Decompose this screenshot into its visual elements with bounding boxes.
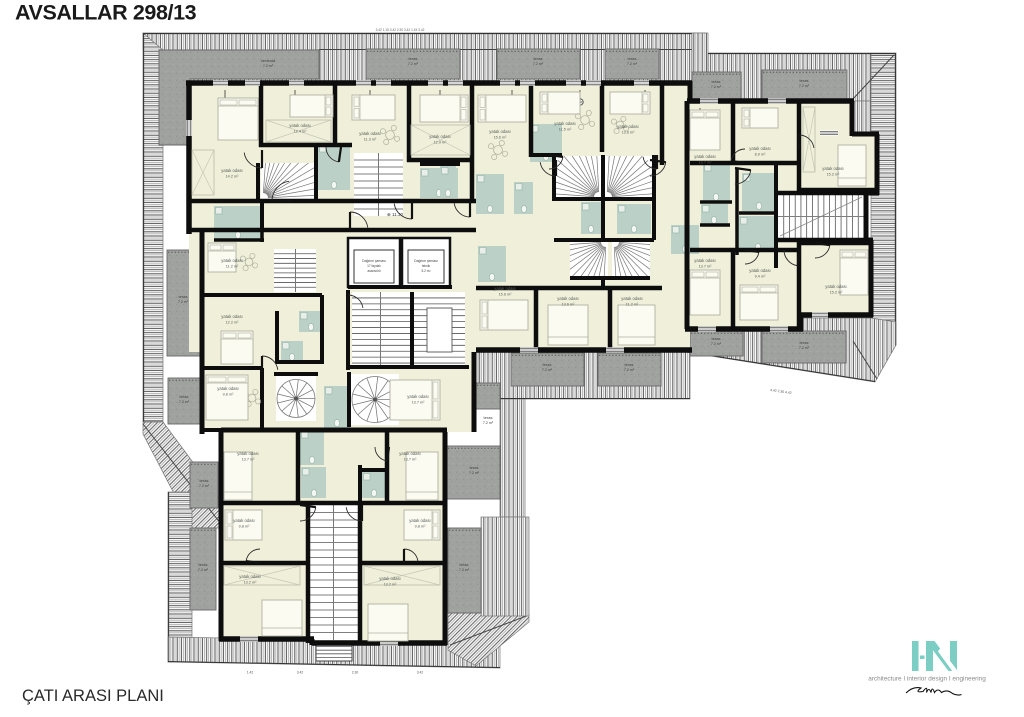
svg-text:yatak odası: yatak odası <box>221 258 242 263</box>
svg-text:7.2 m²: 7.2 m² <box>542 368 553 372</box>
svg-text:teras: teras <box>200 478 209 483</box>
svg-text:yatak odası: yatak odası <box>557 296 578 301</box>
svg-text:teras: teras <box>470 465 479 470</box>
svg-text:15.6 m²: 15.6 m² <box>494 136 508 140</box>
svg-text:yatak odası: yatak odası <box>217 386 238 391</box>
svg-text:architecture I interior desi: architecture I interior design I enginee… <box>868 676 986 683</box>
svg-text:yatak odası: yatak odası <box>379 576 400 581</box>
svg-text:13.2 m²: 13.2 m² <box>244 581 258 585</box>
svg-text:12.2 m²: 12.2 m² <box>226 321 240 325</box>
svg-text:teknik: teknik <box>422 264 431 268</box>
svg-text:yatak odası: yatak odası <box>749 268 770 273</box>
svg-text:yatak odası: yatak odası <box>822 166 843 171</box>
svg-text:7.2 m²: 7.2 m² <box>179 400 190 404</box>
svg-text:Dağıtım şeması: Dağıtım şeması <box>362 259 386 263</box>
svg-text:teras: teras <box>543 362 552 367</box>
svg-text:7.2 m²: 7.2 m² <box>483 421 494 425</box>
svg-text:yatak odası: yatak odası <box>825 284 846 289</box>
svg-text:11.2 m²: 11.2 m² <box>626 303 639 307</box>
svg-text:teras: teras <box>628 56 637 61</box>
svg-text:15.2 m²: 15.2 m² <box>827 173 841 177</box>
svg-text:8.9 m²: 8.9 m² <box>755 153 766 157</box>
svg-text:ÇATI ARASI PLANI: ÇATI ARASI PLANI <box>22 687 164 705</box>
svg-text:13.7 m²: 13.7 m² <box>412 401 426 405</box>
svg-text:yatak odası: yatak odası <box>289 123 310 128</box>
svg-text:1.42: 1.42 <box>247 671 254 675</box>
svg-text:11.5 m²: 11.5 m² <box>559 128 572 132</box>
svg-text:7.2 m²: 7.2 m² <box>459 568 470 572</box>
svg-text:17 faydalı: 17 faydalı <box>367 264 381 268</box>
svg-text:7.2 m²: 7.2 m² <box>178 300 189 304</box>
svg-text:yatak odası: yatak odası <box>694 258 715 263</box>
svg-text:yatak odası: yatak odası <box>237 451 258 456</box>
svg-text:yatak odası: yatak odası <box>409 518 430 523</box>
svg-text:yatak odası: yatak odası <box>489 129 510 134</box>
svg-text:yatak odası: yatak odası <box>621 296 642 301</box>
svg-text:veranda: veranda <box>261 58 276 63</box>
svg-text:7.2 m²: 7.2 m² <box>799 346 810 350</box>
svg-text:3.42: 3.42 <box>417 671 424 675</box>
svg-text:13.7 m²: 13.7 m² <box>404 458 418 462</box>
svg-text:7.2 m²: 7.2 m² <box>711 342 722 346</box>
svg-text:5.2 m²: 5.2 m² <box>421 269 430 273</box>
svg-text:yatak odası: yatak odası <box>429 134 450 139</box>
svg-text:teras: teras <box>179 294 188 299</box>
svg-text:yatak odası: yatak odası <box>221 314 242 319</box>
svg-text:yatak odası: yatak odası <box>233 518 254 523</box>
svg-text:12.4 m²: 12.4 m² <box>294 130 308 134</box>
svg-text:teras: teras <box>534 56 543 61</box>
svg-text:13.6 m²: 13.6 m² <box>562 303 576 307</box>
svg-text:teras: teras <box>460 562 469 567</box>
svg-text:9.4 m²: 9.4 m² <box>755 275 766 279</box>
svg-text:yatak odası: yatak odası <box>239 574 260 579</box>
svg-text:7.2 m²: 7.2 m² <box>533 62 544 66</box>
svg-text:yatak odası: yatak odası <box>749 146 770 151</box>
svg-text:teras: teras <box>712 79 721 84</box>
svg-text:15.2 m²: 15.2 m² <box>830 291 844 295</box>
svg-text:yatak odası: yatak odası <box>399 451 420 456</box>
svg-text:⊕ 11.30: ⊕ 11.30 <box>387 212 403 217</box>
svg-text:9.8 m²: 9.8 m² <box>239 525 250 529</box>
svg-text:teras: teras <box>625 362 634 367</box>
svg-text:yatak odası: yatak odası <box>221 168 242 173</box>
svg-text:teras: teras <box>712 336 721 341</box>
svg-text:yatak odası: yatak odası <box>617 124 638 129</box>
svg-text:13.7 m²: 13.7 m² <box>699 161 713 165</box>
svg-text:7.2 m²: 7.2 m² <box>624 368 635 372</box>
svg-text:teras: teras <box>199 562 208 567</box>
svg-text:12.9 m²: 12.9 m² <box>434 141 448 145</box>
svg-text:3.42 1.15 3.42 2.30 3.42: 3.42 1.15 3.42 2.30 3.42 1.15 3.42 <box>376 28 425 32</box>
svg-text:7.2 m²: 7.2 m² <box>408 62 419 66</box>
svg-text:teras: teras <box>800 78 809 83</box>
svg-text:13.7 m²: 13.7 m² <box>242 458 256 462</box>
svg-text:7.2 m²: 7.2 m² <box>627 62 638 66</box>
svg-text:7.2 m²: 7.2 m² <box>263 64 274 68</box>
svg-text:13.6 m²: 13.6 m² <box>622 131 636 135</box>
svg-text:Dağıtım şeması: Dağıtım şeması <box>414 259 438 263</box>
svg-text:2.30: 2.30 <box>352 671 359 675</box>
svg-text:yatak odası: yatak odası <box>694 154 715 159</box>
svg-text:7.2 m²: 7.2 m² <box>199 484 210 488</box>
svg-text:15.6 m²: 15.6 m² <box>499 293 513 297</box>
svg-text:teras: teras <box>409 56 418 61</box>
svg-text:7.2 m²: 7.2 m² <box>799 84 810 88</box>
svg-text:teras: teras <box>180 394 189 399</box>
svg-text:7.2 m²: 7.2 m² <box>198 568 209 572</box>
svg-text:9.8 m²: 9.8 m² <box>223 393 234 397</box>
svg-text:13.2 m²: 13.2 m² <box>384 583 398 587</box>
svg-text:yatak odası: yatak odası <box>554 121 575 126</box>
svg-text:7.2 m²: 7.2 m² <box>469 471 480 475</box>
svg-text:11.2 m²: 11.2 m² <box>226 265 239 269</box>
svg-text:yatak odası: yatak odası <box>494 286 515 291</box>
svg-text:11.3 m²: 11.3 m² <box>364 138 377 142</box>
svg-text:3.42: 3.42 <box>297 671 304 675</box>
svg-text:yatak odası: yatak odası <box>407 394 428 399</box>
svg-text:teras: teras <box>484 415 493 420</box>
svg-text:13.7 m²: 13.7 m² <box>699 265 713 269</box>
svg-text:14.2 m²: 14.2 m² <box>226 175 240 179</box>
svg-text:yatak odası: yatak odası <box>359 131 380 136</box>
svg-text:teras: teras <box>800 340 809 345</box>
svg-text:7.2 m²: 7.2 m² <box>711 85 722 89</box>
svg-text:asansörü: asansörü <box>367 269 380 273</box>
svg-text:AVSALLAR 298/13: AVSALLAR 298/13 <box>15 1 197 25</box>
svg-text:9.8 m²: 9.8 m² <box>415 525 426 529</box>
